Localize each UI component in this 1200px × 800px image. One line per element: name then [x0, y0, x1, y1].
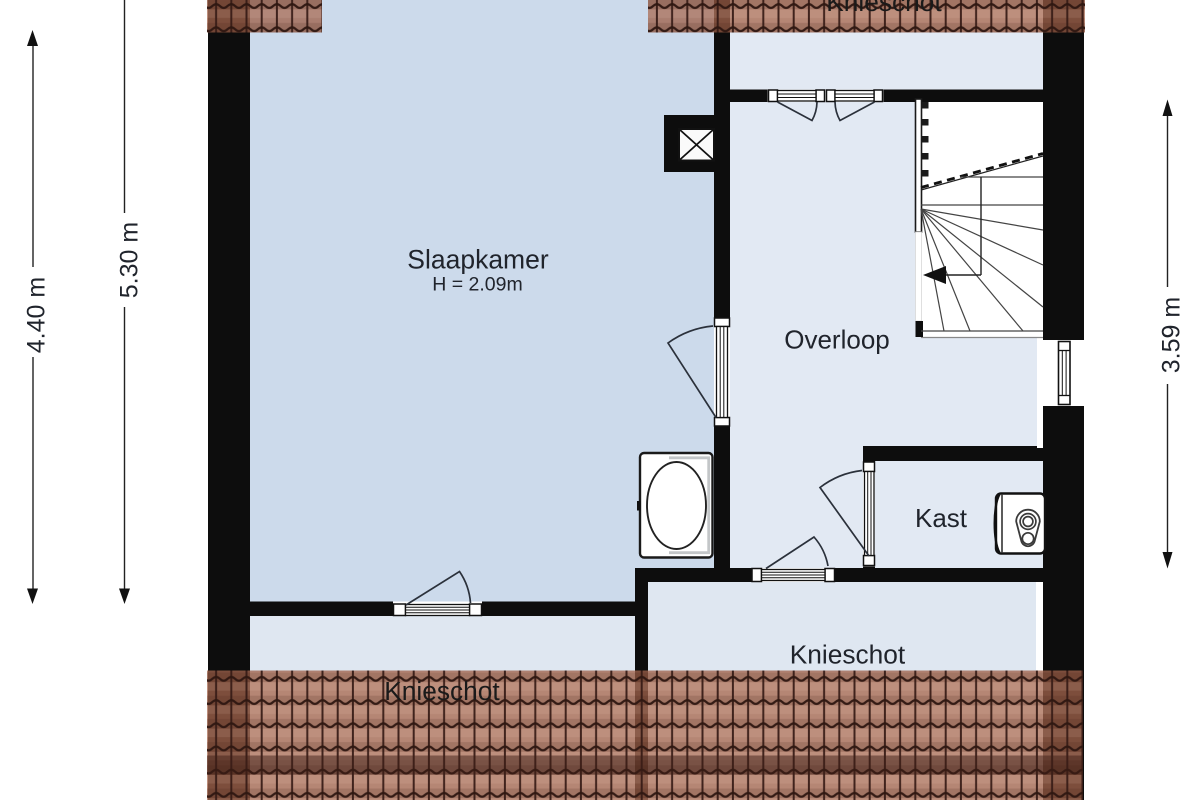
svg-text:Knieschot: Knieschot — [790, 640, 906, 670]
svg-text:5.30 m: 5.30 m — [116, 222, 144, 298]
svg-text:Kast: Kast — [915, 503, 968, 533]
svg-text:3.59 m: 3.59 m — [1158, 297, 1186, 373]
svg-text:Overloop: Overloop — [784, 325, 890, 355]
svg-text:4.40 m: 4.40 m — [23, 277, 51, 353]
svg-text:H = 2.09m: H = 2.09m — [432, 274, 523, 296]
svg-text:Slaapkamer: Slaapkamer — [407, 245, 549, 275]
svg-text:Knieschot: Knieschot — [384, 676, 500, 706]
svg-text:Knieschot: Knieschot — [826, 0, 942, 17]
